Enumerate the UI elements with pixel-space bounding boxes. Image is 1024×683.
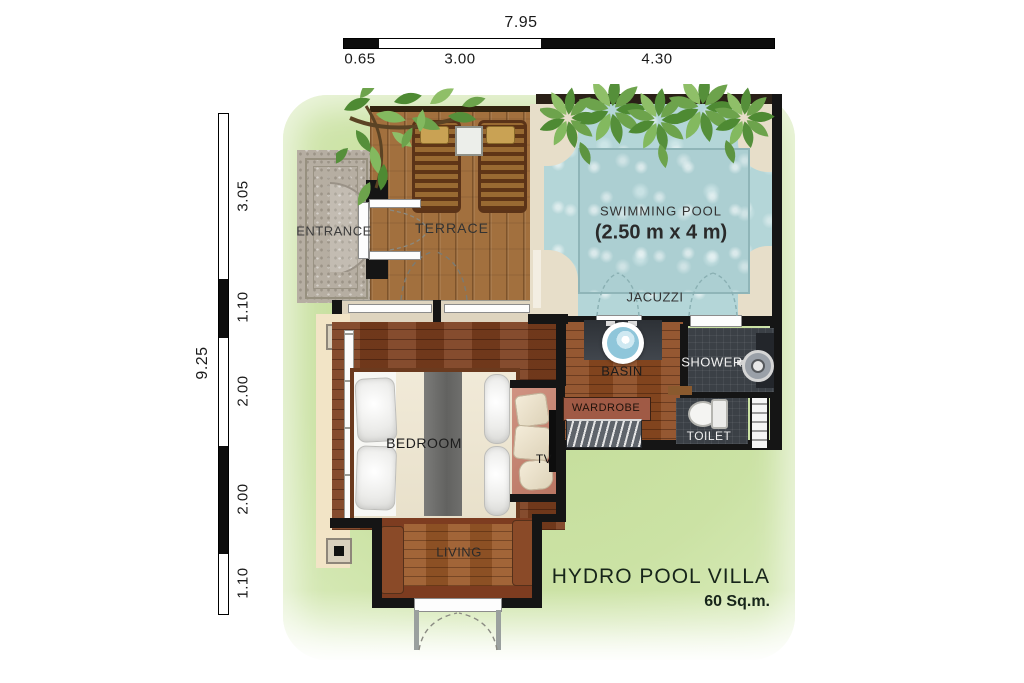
pillow	[355, 445, 397, 510]
page-title: HYDRO POOL VILLA	[520, 565, 770, 589]
dim-segment	[219, 554, 228, 614]
pillow	[354, 377, 397, 443]
sofa-cushion	[514, 392, 550, 428]
dim-left-seg-label: 3.05	[235, 180, 252, 211]
lounger-pillow	[486, 126, 515, 144]
dim-left-seg-label: 1.10	[235, 567, 252, 598]
dim-segment	[379, 39, 541, 48]
door-threshold	[690, 315, 742, 327]
toilet-label: TOILET	[687, 429, 732, 443]
dim-top-seg-label: 4.30	[641, 51, 672, 68]
dim-segment	[219, 338, 228, 446]
door-swing-icon	[418, 612, 498, 652]
veranda-post	[326, 538, 352, 564]
basin-label: BASIN	[601, 364, 643, 379]
dimension-bar-left	[218, 113, 229, 615]
wall	[528, 314, 568, 324]
dim-top-seg-label: 0.65	[344, 51, 375, 68]
plan-area: 60 Sq.m.	[520, 593, 770, 611]
pool-label: SWIMMING POOL	[600, 204, 722, 219]
dim-segment	[219, 114, 228, 279]
jacuzzi-label: JACUZZI	[627, 290, 684, 305]
living-label: LIVING	[436, 545, 482, 560]
bedroom-bath-wall	[556, 314, 566, 386]
door-post	[433, 300, 441, 324]
entry-door-panel	[369, 251, 421, 260]
pool-wall-window	[533, 250, 541, 308]
dim-top-seg-label: 3.00	[444, 51, 475, 68]
door-threshold	[414, 598, 502, 612]
toilet-door-threshold	[668, 386, 692, 395]
tv-label: TV	[536, 452, 552, 466]
living-bench	[380, 526, 404, 594]
towel-ladder-icon	[750, 396, 769, 450]
bedroom-label: BEDROOM	[386, 435, 462, 451]
sliding-door-panel	[348, 304, 432, 313]
floor-plan-canvas: ENTRANCE TERRACE SWIMMING POOL (2.50 m x…	[0, 0, 1024, 683]
bed-foot-roll	[484, 374, 510, 444]
pool-size-label: (2.50 m x 4 m)	[595, 222, 727, 245]
living-left-wall	[372, 518, 382, 608]
plan-title-block: HYDRO POOL VILLA 60 Sq.m.	[520, 565, 770, 611]
dim-segment	[344, 39, 379, 48]
dim-left-seg-label: 2.00	[235, 483, 252, 514]
dim-left-total: 9.25	[194, 346, 212, 379]
toilet-tank	[711, 399, 728, 429]
shower-label: SHOWER	[681, 355, 743, 370]
dim-segment	[541, 39, 774, 48]
bed-foot-roll	[484, 446, 510, 516]
dim-segment	[219, 279, 228, 338]
sliding-door-panel	[444, 304, 530, 313]
foliage-icon	[336, 88, 486, 210]
basin-icon	[602, 322, 644, 364]
shower-head-icon	[742, 350, 774, 382]
living-bottom-wall	[372, 598, 418, 608]
dim-top-total: 7.95	[504, 14, 537, 32]
terrace-label: TERRACE	[415, 220, 489, 236]
dim-left-seg-label: 2.00	[235, 375, 252, 406]
entry-pillar	[366, 257, 388, 279]
wardrobe-label: WARDROBE	[572, 402, 640, 414]
dim-left-seg-label: 1.10	[235, 291, 252, 322]
hanger-rail-icon	[566, 419, 642, 448]
dim-segment	[219, 446, 228, 554]
foliage-icon	[540, 84, 776, 176]
door-swing-icon	[686, 270, 740, 316]
dimension-bar-top	[343, 38, 775, 49]
entrance-label: ENTRANCE	[296, 224, 372, 239]
